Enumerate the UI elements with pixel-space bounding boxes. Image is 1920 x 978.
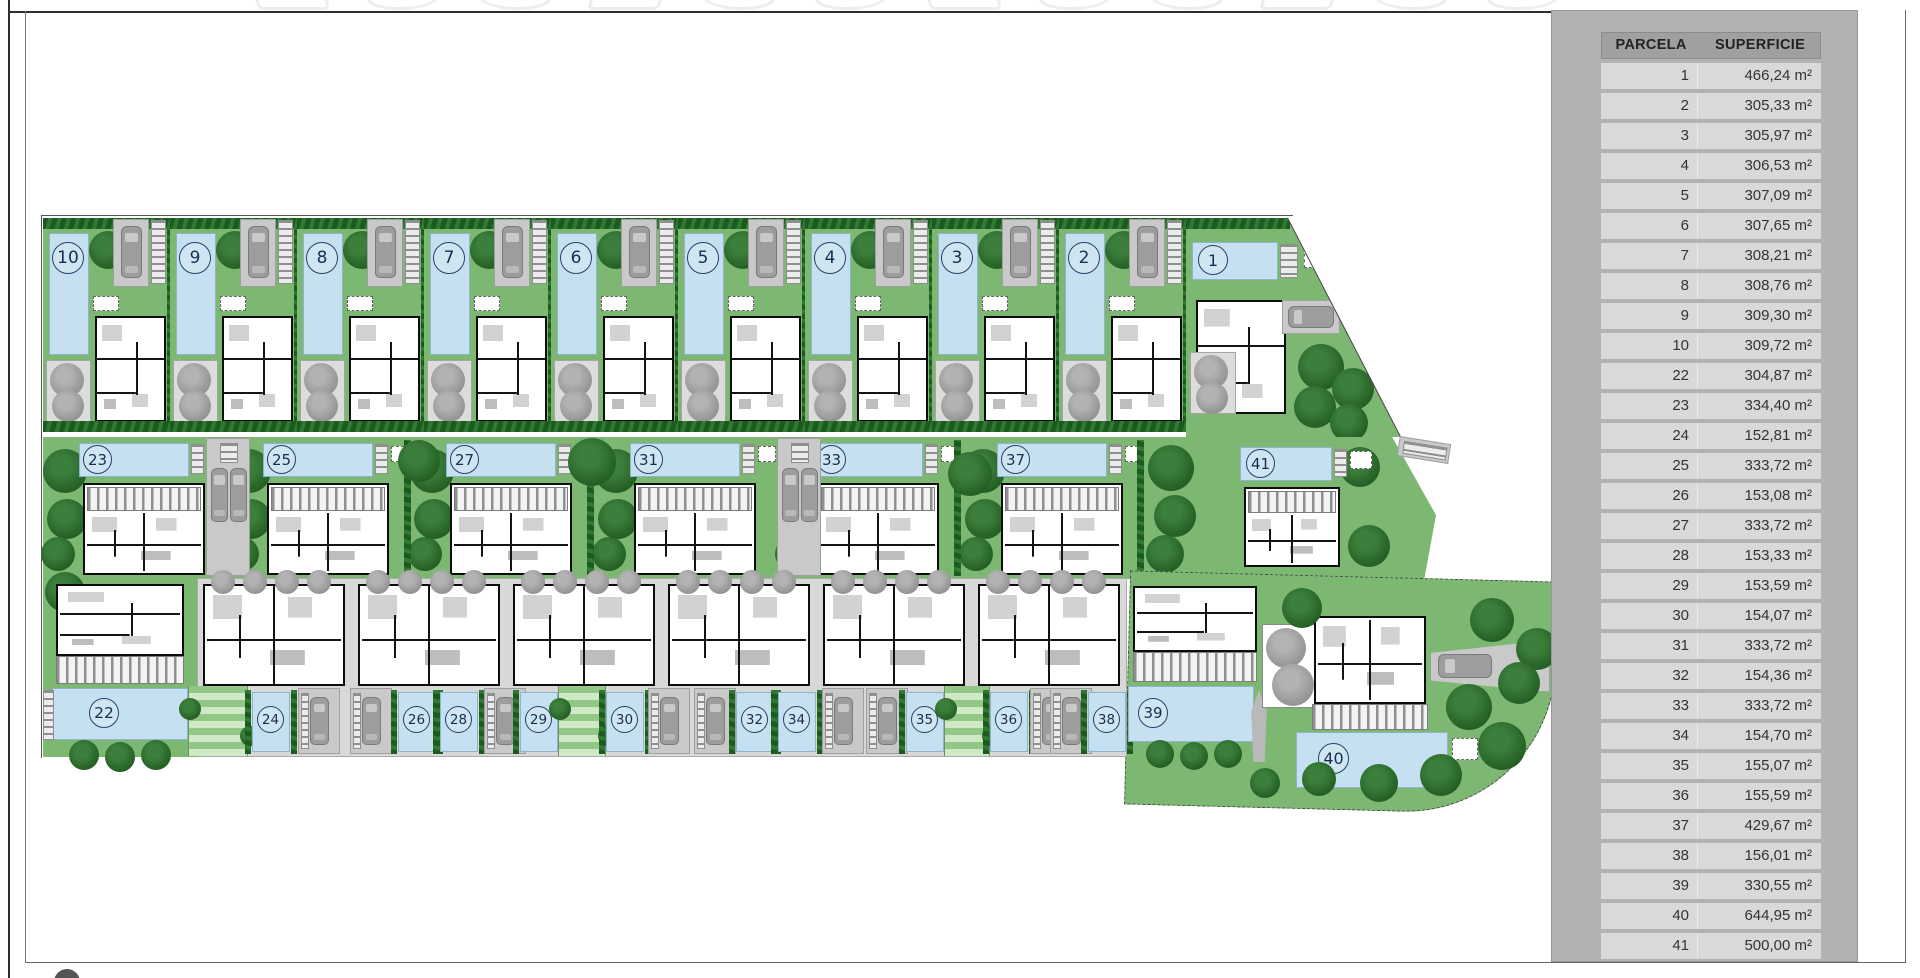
parcel-module-22: 22 [43, 578, 197, 757]
table-row: 28153,33 m² [1601, 543, 1821, 569]
parcel-cell: 37 [1601, 813, 1698, 839]
hedge [1137, 440, 1144, 576]
hedge [513, 690, 519, 754]
stairs-icon [1167, 220, 1182, 284]
parcel-module-middle-23: 23 [43, 437, 227, 579]
car-icon [503, 227, 522, 277]
party-wall [583, 586, 585, 684]
tree-icon [47, 499, 87, 539]
gray-tree-icon [366, 570, 390, 594]
parcel-number-marker: 30 [611, 706, 638, 733]
townhouse-block [823, 584, 965, 686]
area-cell: 154,07 m² [1698, 603, 1821, 629]
floorplan-detail [1137, 590, 1253, 648]
area-cell: 334,40 m² [1698, 393, 1821, 419]
swimming-pool [52, 688, 188, 740]
gray-tree-icon [52, 390, 84, 422]
hedge [291, 690, 297, 754]
area-cell: 153,59 m² [1698, 573, 1821, 599]
hedge [433, 690, 439, 754]
floorplan-detail [87, 513, 201, 571]
gray-tree-icon [863, 570, 887, 594]
stairs-icon [191, 444, 204, 474]
table-row: 29153,59 m² [1601, 573, 1821, 599]
tree-icon [568, 438, 616, 486]
car-icon [802, 469, 817, 521]
parcel-cell: 2 [1601, 93, 1698, 119]
gray-tree-icon [521, 570, 545, 594]
tree-icon [1498, 662, 1540, 704]
stairs-icon [278, 220, 293, 284]
house-floorplan [222, 316, 293, 422]
hedge [1186, 218, 1290, 229]
driveway [1002, 219, 1038, 287]
tree-icon [1154, 495, 1196, 537]
parcel-module-41: 41 [1144, 437, 1436, 579]
floorplan-detail [271, 513, 385, 571]
legend-table-body: 1466,24 m²2305,33 m²3305,97 m²4306,53 m²… [1601, 63, 1821, 959]
frame-right [1905, 10, 1906, 963]
parcel-cell: 23 [1601, 393, 1698, 419]
tree-icon [1330, 404, 1368, 442]
house-floorplan [603, 316, 674, 422]
driveway [648, 688, 690, 754]
area-cell: 309,72 m² [1698, 333, 1821, 359]
floorplan-detail [1005, 513, 1119, 571]
tree-icon [1214, 740, 1242, 768]
parcel-number-marker: 28 [445, 706, 472, 733]
plan-boundary-left [41, 215, 42, 758]
stairs-icon [697, 693, 705, 749]
hedge [424, 421, 551, 432]
area-cell: 333,72 m² [1698, 633, 1821, 659]
car-icon [1289, 307, 1333, 327]
house-floorplan [56, 584, 184, 656]
tree-icon [69, 740, 99, 770]
stairs-icon [742, 444, 755, 474]
parcel-cell: 33 [1601, 693, 1698, 719]
area-cell: 307,09 m² [1698, 183, 1821, 209]
parcel-number-marker: 22 [89, 698, 119, 728]
car-icon [707, 698, 724, 744]
gray-tree-icon [941, 390, 973, 422]
table-row: 37429,67 m² [1601, 813, 1821, 839]
stairs-icon [1280, 244, 1298, 278]
tree-icon [41, 537, 75, 571]
parcel-cell: 35 [1601, 753, 1698, 779]
car-icon [630, 227, 649, 277]
gray-tree-icon [398, 570, 422, 594]
parcel-cell: 30 [1601, 603, 1698, 629]
house-floorplan [1111, 316, 1182, 422]
stairs-icon [405, 220, 420, 284]
gray-tree-icon [275, 570, 299, 594]
stairs-icon [532, 220, 547, 284]
parcel-cell: 25 [1601, 453, 1698, 479]
area-cell: 466,24 m² [1698, 63, 1821, 89]
stairs-icon [375, 444, 388, 474]
parcel-module-middle-37: 37 [961, 437, 1145, 579]
car-icon [363, 698, 380, 744]
stairs-icon [659, 220, 674, 284]
hedge [729, 690, 735, 754]
parcel-cell: 3 [1601, 123, 1698, 149]
table-row: 9309,30 m² [1601, 303, 1821, 329]
car-icon [376, 227, 395, 277]
hedge [297, 421, 424, 432]
parcel-module-top-5: 5 [678, 218, 805, 432]
pergola-deck [87, 487, 201, 511]
parcel-cell: 39 [1601, 873, 1698, 899]
gray-tree-icon [927, 570, 951, 594]
car-icon [1138, 227, 1157, 277]
parcel-number-marker: 24 [257, 706, 284, 733]
table-row: 2305,33 m² [1601, 93, 1821, 119]
hedge [771, 690, 777, 754]
parcel-module-middle-25: 25 [227, 437, 411, 579]
car-icon [122, 227, 141, 277]
area-cell: 304,87 m² [1698, 363, 1821, 389]
road-hatch [1402, 441, 1447, 461]
floorplan-detail [1318, 620, 1422, 700]
gray-tree-icon [585, 570, 609, 594]
table-row: 5307,09 m² [1601, 183, 1821, 209]
parcel-cell: 22 [1601, 363, 1698, 389]
table-row: 40644,95 m² [1601, 903, 1821, 929]
tree-icon [592, 537, 626, 571]
stairs-icon [1109, 444, 1122, 474]
tree-icon [1146, 535, 1184, 573]
patio-table-icon [728, 296, 754, 311]
table-row: 22304,87 m² [1601, 363, 1821, 389]
gray-tree-icon [1018, 570, 1042, 594]
shared-driveway [206, 438, 250, 576]
tree-icon [598, 499, 638, 539]
parcel-number-marker: 7 [433, 242, 465, 274]
driveway [367, 219, 403, 287]
party-wall [1048, 586, 1050, 684]
stairs-icon [869, 693, 877, 749]
parcel-number-marker: 41 [1246, 449, 1275, 478]
house-floorplan [984, 316, 1055, 422]
patio-furniture-icon [1452, 738, 1478, 760]
table-row: 33333,72 m² [1601, 693, 1821, 719]
tree-icon [1282, 588, 1322, 628]
tree-icon [408, 537, 442, 571]
house-floorplan [857, 316, 928, 422]
pergola-deck [1005, 487, 1119, 511]
parcel-number-marker: 34 [783, 706, 810, 733]
townhouse-block [203, 584, 345, 686]
area-cell: 308,76 m² [1698, 273, 1821, 299]
house-floorplan [95, 316, 166, 422]
legend-table: PARCELA SUPERFICIE 1466,24 m²2305,33 m²3… [1601, 32, 1821, 959]
tree-icon [179, 698, 201, 720]
parcel-number-marker: 25 [267, 445, 296, 474]
patio-table-icon [1109, 296, 1135, 311]
gray-tree-icon [617, 570, 641, 594]
area-cell: 305,97 m² [1698, 123, 1821, 149]
house-floorplan [730, 316, 801, 422]
parcel-number-marker: 33 [817, 445, 846, 474]
parcel-module-1: 1 [1186, 218, 1401, 437]
gray-tree-icon [1050, 570, 1074, 594]
gray-tree-icon [430, 570, 454, 594]
legend-table-header: PARCELA SUPERFICIE [1601, 32, 1821, 59]
parcel-number-marker: 26 [403, 706, 430, 733]
parcel-cell: 5 [1601, 183, 1698, 209]
site-plan: 1098765432123252731333741222426282930323… [0, 0, 1560, 978]
table-row: 26153,08 m² [1601, 483, 1821, 509]
tree-icon [1420, 754, 1462, 796]
gray-tree-icon [740, 570, 764, 594]
driveway [822, 688, 864, 754]
stairs-icon [1033, 693, 1041, 749]
parcel-number-marker: 4 [814, 242, 846, 274]
patio-furniture-icon [758, 446, 776, 462]
area-cell: 153,33 m² [1698, 543, 1821, 569]
parcel-number-marker: 3 [941, 242, 973, 274]
car-icon [661, 698, 678, 744]
hedge [391, 690, 397, 754]
gray-tree-icon [708, 570, 732, 594]
gray-tree-icon [831, 570, 855, 594]
parcel-cell: 38 [1601, 843, 1698, 869]
gray-tree-icon [553, 570, 577, 594]
gray-tree-icon [306, 390, 338, 422]
stairs-icon [301, 693, 309, 749]
area-cell: 330,55 m² [1698, 873, 1821, 899]
area-cell: 155,07 m² [1698, 753, 1821, 779]
parcel-number-marker: 8 [306, 242, 338, 274]
table-row: 39330,55 m² [1601, 873, 1821, 899]
car-icon [1063, 698, 1080, 744]
stairs-icon [487, 693, 495, 749]
floorplan-detail [454, 513, 568, 571]
car-icon [311, 698, 328, 744]
patio-table-icon [855, 296, 881, 311]
table-row: 30154,07 m² [1601, 603, 1821, 629]
hedge [899, 690, 905, 754]
party-wall [428, 586, 430, 684]
stairs-icon [1053, 693, 1061, 749]
patio-furniture-icon [1350, 451, 1372, 469]
patio-table-icon [982, 296, 1008, 311]
gray-tree-icon [211, 570, 235, 594]
house-floorplan [634, 483, 756, 575]
driveway [494, 219, 530, 287]
parcel-cell: 7 [1601, 243, 1698, 269]
tree-icon [398, 440, 440, 482]
driveway [113, 219, 149, 287]
area-column-header: SUPERFICIE [1700, 33, 1820, 58]
tree-icon [1470, 598, 1514, 642]
driveway [875, 219, 911, 287]
hedge [245, 690, 251, 754]
gray-tree-icon [243, 570, 267, 594]
house-floorplan [817, 483, 939, 575]
stairs-icon [825, 693, 833, 749]
parcel-module-middle-31: 31 [594, 437, 778, 579]
house-floorplan [1133, 586, 1257, 652]
area-cell: 429,67 m² [1698, 813, 1821, 839]
pergola-deck [1133, 652, 1257, 682]
area-cell: 153,08 m² [1698, 483, 1821, 509]
driveway [298, 688, 340, 754]
driveway [1129, 219, 1165, 287]
table-row: 6307,65 m² [1601, 213, 1821, 239]
area-cell: 500,00 m² [1698, 933, 1821, 959]
area-cell: 152,81 m² [1698, 423, 1821, 449]
floorplan-detail [60, 588, 180, 652]
car-icon [212, 469, 227, 521]
table-row: 36155,59 m² [1601, 783, 1821, 809]
shared-driveway [777, 438, 821, 576]
townhouse-block [978, 584, 1120, 686]
house-floorplan [1244, 487, 1340, 567]
area-cell: 333,72 m² [1698, 693, 1821, 719]
parcel-module-top-7: 7 [424, 218, 551, 432]
car-icon [783, 469, 798, 521]
driveway [240, 219, 276, 287]
site-plan-sheet: 1098765432123252731333741222426282930323… [0, 0, 1920, 978]
stairs-icon [651, 693, 659, 749]
parcel-cell: 28 [1601, 543, 1698, 569]
parcel-number-marker: 32 [741, 706, 768, 733]
parcel-cell: 27 [1601, 513, 1698, 539]
gray-tree-icon [986, 570, 1010, 594]
driveway [621, 219, 657, 287]
stairs-icon [353, 693, 361, 749]
tree-icon [414, 499, 454, 539]
patio-table-icon [474, 296, 500, 311]
parcel-number-marker: 10 [52, 242, 84, 274]
tree-icon [1478, 722, 1526, 770]
gray-tree-icon [433, 390, 465, 422]
parcel-cell: 6 [1601, 213, 1698, 239]
area-cell: 306,53 m² [1698, 153, 1821, 179]
plan-boundary-top [41, 215, 1293, 216]
party-wall [893, 586, 895, 684]
gray-tree-icon [462, 570, 486, 594]
table-row: 38156,01 m² [1601, 843, 1821, 869]
parcel-cell: 4 [1601, 153, 1698, 179]
tree-icon [935, 698, 957, 720]
gray-tree-icon [307, 570, 331, 594]
parcel-column-header: PARCELA [1602, 33, 1700, 58]
parcel-number-marker: 2 [1068, 242, 1100, 274]
parcel-cell: 31 [1601, 633, 1698, 659]
stairs-icon [151, 220, 166, 284]
hedge [599, 690, 605, 754]
parcel-number-marker: 31 [634, 445, 663, 474]
hedge [1081, 690, 1087, 754]
area-cell: 644,95 m² [1698, 903, 1821, 929]
party-wall [273, 586, 275, 684]
house-floorplan [450, 483, 572, 575]
car-icon [835, 698, 852, 744]
area-cell: 155,59 m² [1698, 783, 1821, 809]
house-floorplan [1314, 616, 1426, 704]
tree-icon [1360, 764, 1398, 802]
stairs-icon [786, 220, 801, 284]
area-cell: 333,72 m² [1698, 513, 1821, 539]
townhouse-block [668, 584, 810, 686]
hedge [805, 421, 932, 432]
townhouse-block [358, 584, 500, 686]
party-wall [738, 586, 740, 684]
tree-icon [1180, 742, 1208, 770]
table-row: 4306,53 m² [1601, 153, 1821, 179]
tree-icon [965, 499, 1005, 539]
table-row: 35155,07 m² [1601, 753, 1821, 779]
parcel-module-top-3: 3 [932, 218, 1059, 432]
parcel-module-top-9: 9 [170, 218, 297, 432]
parcel-module-top-4: 4 [805, 218, 932, 432]
house-floorplan [1001, 483, 1123, 575]
area-cell: 309,30 m² [1698, 303, 1821, 329]
area-cell: 308,21 m² [1698, 243, 1821, 269]
gray-tree-icon [676, 570, 700, 594]
hedge [932, 421, 1059, 432]
tree-icon [1146, 740, 1174, 768]
tree-icon [105, 742, 135, 772]
hedge [983, 690, 989, 754]
house-floorplan [349, 316, 420, 422]
gray-tree-icon [1266, 628, 1306, 668]
house-floorplan [83, 483, 205, 575]
parcel-number-marker: 37 [1001, 445, 1030, 474]
hedge [678, 421, 805, 432]
parcel-cell: 24 [1601, 423, 1698, 449]
car-icon [231, 469, 246, 521]
gray-tree-icon [179, 390, 211, 422]
pergola-deck [638, 487, 752, 511]
parcel-module-top-2: 2 [1059, 218, 1186, 432]
parcel-module-top-10: 10 [43, 218, 170, 432]
table-row: 31333,72 m² [1601, 633, 1821, 659]
tree-icon [959, 537, 993, 571]
patio-table-icon [347, 296, 373, 311]
stairs-icon [913, 220, 928, 284]
table-row: 1466,24 m² [1601, 63, 1821, 89]
patio-table-icon [220, 296, 246, 311]
parcel-number-marker: 1 [1198, 245, 1228, 275]
tree-icon [1148, 445, 1194, 491]
table-row: 10309,72 m² [1601, 333, 1821, 359]
tree-icon [1250, 768, 1280, 798]
table-row: 8308,76 m² [1601, 273, 1821, 299]
area-cell: 305,33 m² [1698, 93, 1821, 119]
parcel-cell: 36 [1601, 783, 1698, 809]
parcel-cell: 9 [1601, 303, 1698, 329]
table-row: 3305,97 m² [1601, 123, 1821, 149]
house-floorplan [476, 316, 547, 422]
pergola-deck [454, 487, 568, 511]
table-row: 24152,81 m² [1601, 423, 1821, 449]
stairs-icon [791, 443, 809, 463]
gray-tree-icon [1068, 390, 1100, 422]
parcel-cell: 8 [1601, 273, 1698, 299]
driveway [350, 688, 392, 754]
parcel-cell: 34 [1601, 723, 1698, 749]
car-icon [884, 227, 903, 277]
patio-table-icon [601, 296, 627, 311]
parcel-cell: 32 [1601, 663, 1698, 689]
stairs-icon [1334, 449, 1347, 477]
patio-table-icon [93, 296, 119, 311]
pergola-deck [271, 487, 385, 511]
